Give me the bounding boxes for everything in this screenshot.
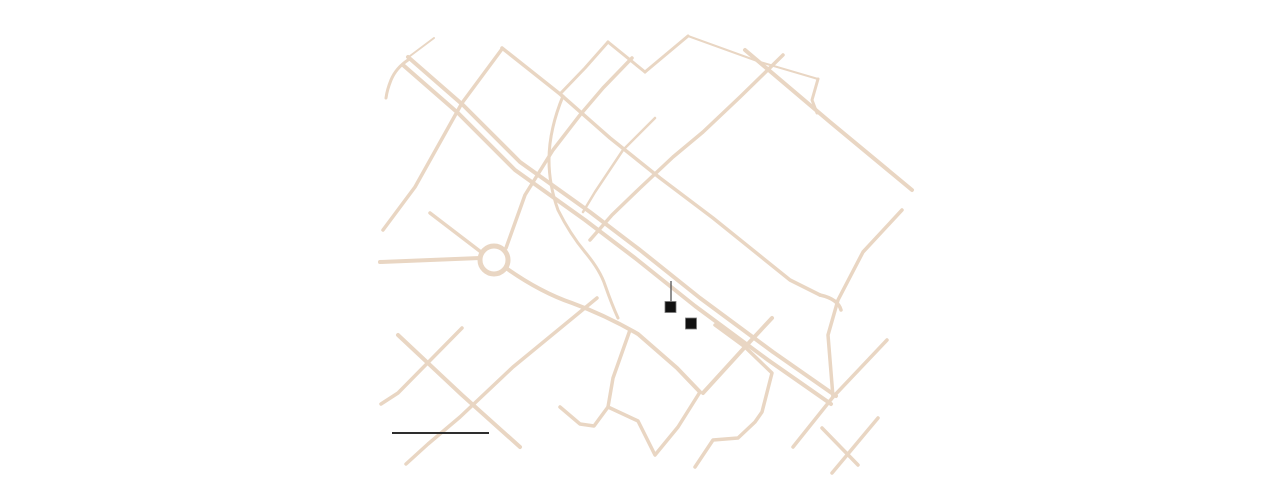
road-top-left-stub (410, 38, 434, 56)
road-long-diagonal-cross (590, 55, 783, 240)
map-marker-2[interactable] (686, 318, 697, 329)
road-southeast-cross-road (793, 340, 887, 447)
map-marker-1[interactable] (665, 302, 676, 313)
road-dual-carriageway-a (408, 57, 836, 396)
map-canvas[interactable] (0, 0, 1280, 482)
road-roundabout-west-road (380, 258, 480, 262)
road-roundabout-nw-connector (430, 213, 481, 252)
road-southwest-short-cross (381, 328, 462, 404)
road-top-zigzag-b (608, 42, 645, 72)
road-southwest-diagonal (406, 298, 597, 464)
road-south-zigzag-east (695, 325, 772, 467)
roads-layer (380, 36, 912, 473)
road-south-zigzag-west (560, 407, 608, 426)
road-northeast-avenue (745, 50, 912, 190)
map-figure (0, 0, 1280, 482)
road-southwest-street (398, 335, 520, 447)
roundabout (480, 246, 508, 274)
page (0, 0, 1280, 482)
annotation-layer (392, 281, 697, 433)
road-top-zigzag-c (645, 36, 688, 72)
road-top-zigzag-a (560, 42, 608, 94)
